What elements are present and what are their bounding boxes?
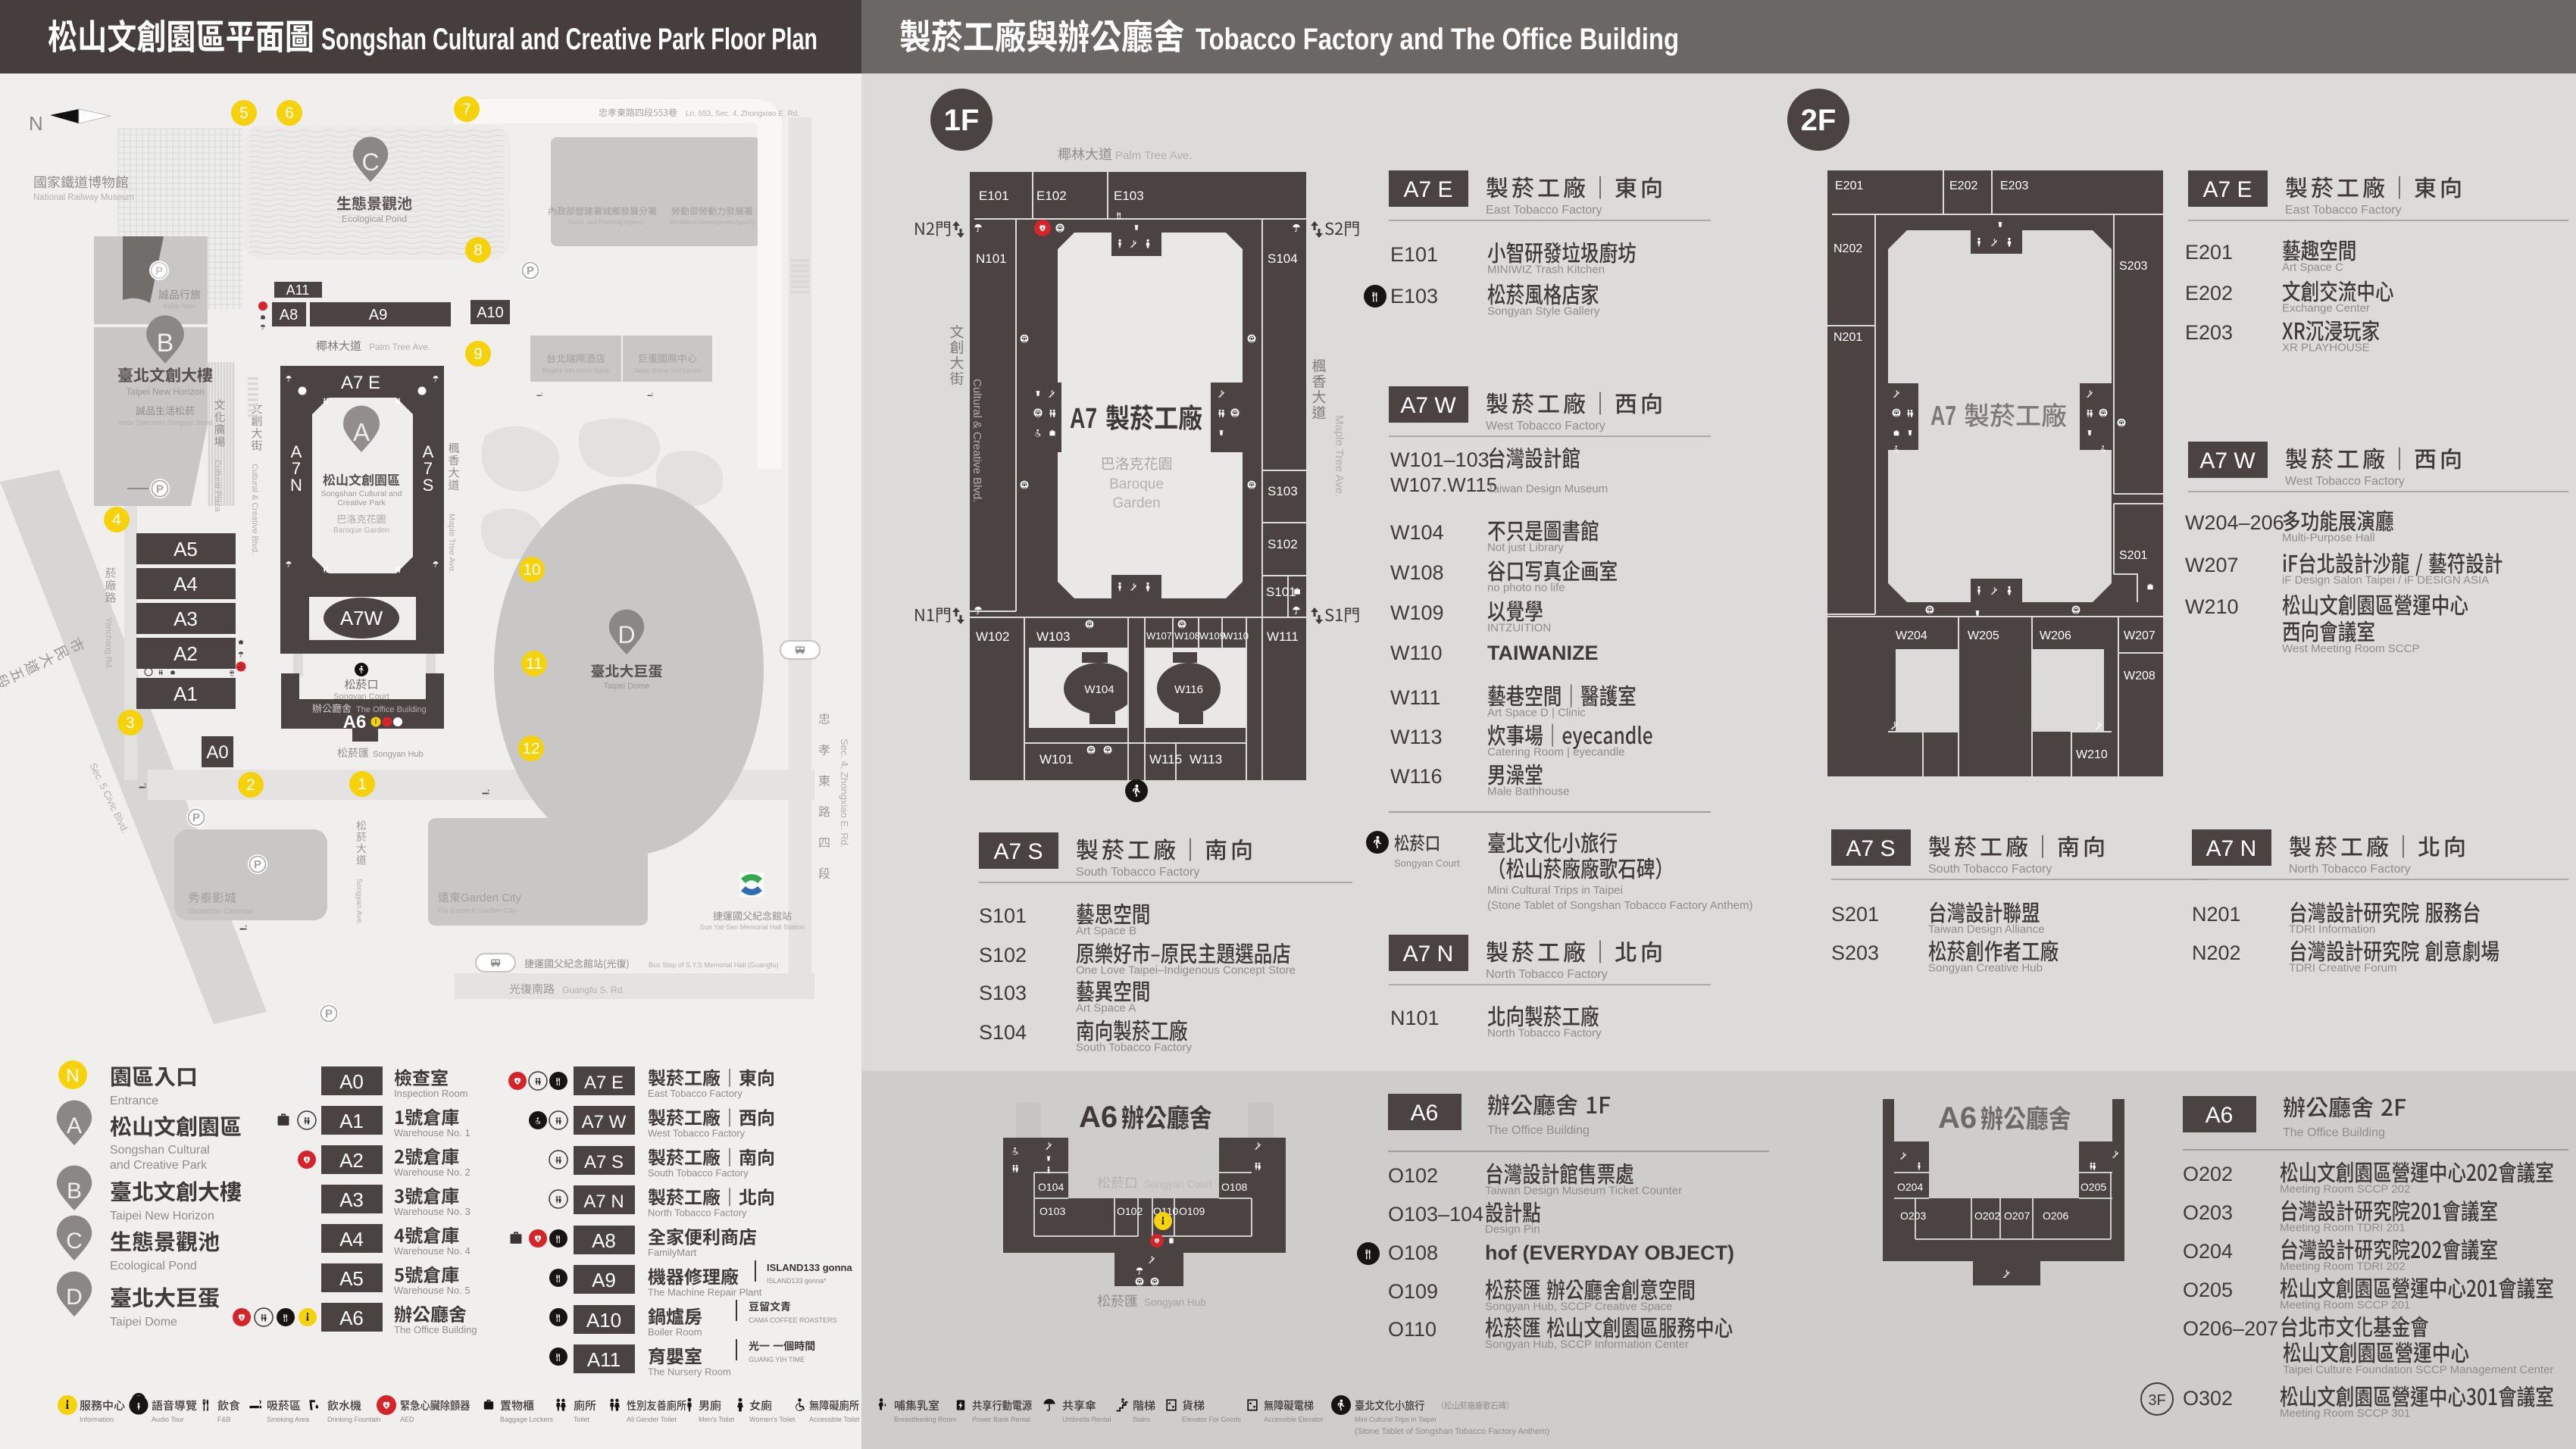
svg-text:(Stone Tablet of Songshan Toba: (Stone Tablet of Songshan Tobacco Factor… [1487,899,1753,912]
svg-text:Tobacco Factory and The Office: Tobacco Factory and The Office Building [1196,23,1679,56]
svg-text:Meeting Room SCCP 301: Meeting Room SCCP 301 [2280,1407,2410,1420]
svg-text:Taiwan Design Alliance: Taiwan Design Alliance [1928,923,2044,936]
svg-text:2: 2 [246,776,255,794]
svg-text:West Tobacco Factory: West Tobacco Factory [1486,420,1605,433]
svg-text:Meeting Room TDRI 202: Meeting Room TDRI 202 [2280,1260,2406,1273]
svg-text:E201: E201 [1835,180,1863,192]
svg-text:N: N [29,112,43,135]
svg-text:A0: A0 [206,742,228,763]
svg-text:S102: S102 [979,944,1027,967]
svg-text:A6: A6 [1079,1101,1118,1134]
svg-text:Meeting Room TDRI 201: Meeting Room TDRI 201 [2280,1222,2406,1235]
svg-text:Workforce Development Agency: Workforce Development Agency [669,219,755,226]
svg-text:Showtime Cinemas: Showtime Cinemas [188,907,253,916]
svg-text:P: P [192,811,200,824]
svg-text:Art Space C: Art Space C [2282,261,2343,274]
svg-text:North Tobacco Factory: North Tobacco Factory [648,1207,747,1219]
svg-text:Ecological Pond: Ecological Pond [342,214,407,224]
svg-text:The Office Building: The Office Building [2283,1126,2385,1139]
svg-text:N201: N201 [1834,331,1862,344]
svg-text:Guangfu S. Rd.: Guangfu S. Rd. [562,985,625,995]
svg-text:Songyan Hub: Songyan Hub [373,750,424,759]
svg-text:Taipei Culture Foundation SCCP: Taipei Culture Foundation SCCP Managemen… [2283,1363,2553,1376]
svg-text:O102: O102 [1388,1164,1438,1187]
svg-text:Taiwan Design Museum Ticket Co: Taiwan Design Museum Ticket Counter [1485,1185,1682,1198]
svg-text:FamilyMart: FamilyMart [648,1247,697,1258]
svg-text:E101: E101 [1390,243,1438,266]
svg-text:West Tobacco Factory: West Tobacco Factory [2285,475,2405,488]
svg-text:A7 N: A7 N [583,1191,624,1212]
svg-text:South Tobacco Factory: South Tobacco Factory [1076,1041,1193,1054]
svg-text:A8: A8 [280,307,298,323]
svg-text:O204: O204 [1897,1181,1923,1193]
svg-text:N202: N202 [1834,242,1862,255]
svg-text:A7W: A7W [340,607,383,629]
svg-text:Stairs: Stairs [1133,1416,1151,1423]
svg-text:A10: A10 [586,1309,621,1332]
svg-text:A6: A6 [1411,1101,1439,1126]
svg-text:O203: O203 [1900,1210,1926,1222]
svg-text:iF Design Salon Taipei / iF DE: iF Design Salon Taipei / iF DESIGN ASIA [2282,574,2489,587]
svg-text:9: 9 [474,345,483,363]
svg-text:Men's Toilet: Men's Toilet [699,1416,735,1423]
svg-text:Baroque: Baroque [1109,476,1164,492]
svg-text:North Tobacco Factory: North Tobacco Factory [1487,1027,1602,1040]
svg-text:N101: N101 [976,251,1007,266]
svg-text:Songyan Ave.: Songyan Ave. [355,879,363,926]
svg-text:The Machine Repair Plant: The Machine Repair Plant [648,1287,762,1298]
svg-text:GUANG YIH TIME: GUANG YIH TIME [749,1356,805,1363]
svg-text:6: 6 [285,105,294,122]
svg-text:Women's Toilet: Women's Toilet [749,1416,796,1423]
svg-text:Songyan Hub: Songyan Hub [1144,1297,1206,1308]
svg-text:Songyan Hub, SCCP Creative Spa: Songyan Hub, SCCP Creative Space [1485,1301,1672,1313]
svg-text:Baggage Lockers: Baggage Lockers [500,1416,554,1423]
svg-text:W206: W206 [2040,629,2071,642]
svg-text:(Stone Tablet of Songshan Toba: (Stone Tablet of Songshan Tobacco Factor… [1355,1427,1549,1436]
svg-text:Bus Stop of S.Y.S Memorial Hal: Bus Stop of S.Y.S Memorial Hall (Guangfu… [649,961,778,969]
svg-text:Taipei Dome: Taipei Dome [110,1316,177,1329]
svg-text:W115: W115 [1149,752,1182,767]
svg-text:A7 S: A7 S [584,1152,624,1173]
svg-text:P: P [155,265,163,278]
svg-text:Meeting Room SCCP 201: Meeting Room SCCP 201 [2280,1299,2410,1312]
svg-text:O103: O103 [1039,1205,1065,1217]
svg-text:A7: A7 [1930,400,1956,431]
svg-text:TAIWANIZE: TAIWANIZE [1487,642,1598,664]
svg-text:National Railway Museum: National Railway Museum [33,193,134,202]
svg-text:A: A [353,418,370,446]
svg-text:A6: A6 [2206,1103,2234,1128]
svg-text:The Office Building: The Office Building [394,1324,477,1335]
svg-text:E203: E203 [2185,321,2233,344]
svg-text:A0: A0 [339,1070,364,1093]
svg-text:West Meeting Room SCCP: West Meeting Room SCCP [2282,642,2419,655]
svg-text:W108: W108 [1174,630,1200,642]
svg-text:A: A [67,1113,82,1138]
svg-text:Accessible Toilet: Accessible Toilet [809,1416,860,1423]
svg-text:3: 3 [126,714,135,732]
svg-text:Songshan Cultural and: Songshan Cultural and [321,489,402,498]
svg-text:Toilet: Toilet [574,1416,590,1423]
svg-text:Ln. 553, Sec. 4, Zhongxiao E.: Ln. 553, Sec. 4, Zhongxiao E. Rd. [686,110,799,118]
svg-text:A1: A1 [339,1110,364,1132]
svg-text:Taiwan Design Museum: Taiwan Design Museum [1487,482,1608,495]
svg-text:E103: E103 [1390,285,1438,308]
svg-text:A1: A1 [174,682,198,705]
svg-text:W113: W113 [1190,752,1222,767]
svg-text:E103: E103 [1114,189,1144,203]
svg-text:One Love Taipei–Indigenous Con: One Love Taipei–Indigenous Concept Store [1076,964,1296,977]
svg-text:ISLAND133 gonna*: ISLAND133 gonna* [767,1277,827,1285]
svg-text:E203: E203 [2000,180,2028,192]
svg-text:TDRI Information: TDRI Information [2289,923,2375,936]
svg-text:All Gender Toilet: All Gender Toilet [627,1416,677,1423]
svg-text:Warehouse No. 5: Warehouse No. 5 [394,1285,470,1296]
svg-text:Inspection Room: Inspection Room [394,1088,468,1099]
svg-text:O108: O108 [1221,1181,1247,1193]
svg-text:A7 N: A7 N [2206,836,2257,861]
svg-text:A7 E: A7 E [1403,177,1452,202]
svg-text:Songshan Cultural and Creative: Songshan Cultural and Creative Park Floo… [321,23,818,56]
svg-text:Cultural & Creative Blvd.: Cultural & Creative Blvd. [250,464,259,554]
svg-text:A5: A5 [339,1267,364,1290]
svg-text:A6: A6 [1938,1101,1977,1135]
svg-text:C: C [66,1229,83,1254]
svg-text:S201: S201 [2119,549,2147,562]
svg-text:A7 S: A7 S [993,839,1043,864]
svg-text:A3: A3 [174,607,198,630]
svg-text:Songyan Style Gallery: Songyan Style Gallery [1487,305,1600,318]
svg-text:W116: W116 [1174,683,1203,696]
svg-text:East Tobacco Factory: East Tobacco Factory [2285,204,2402,217]
svg-text:P: P [156,483,164,496]
svg-text:Maple Tree Ave.: Maple Tree Ave. [447,514,456,573]
svg-text:B: B [157,329,174,358]
svg-text:A4: A4 [339,1228,364,1251]
svg-text:N201: N201 [2192,903,2241,926]
svg-text:P: P [254,858,261,871]
svg-text:Yanchang Rd.: Yanchang Rd. [104,617,113,670]
svg-text:W111: W111 [1267,629,1299,644]
svg-text:S201: S201 [1831,903,1879,926]
svg-text:C: C [361,148,379,176]
svg-text:W204: W204 [1896,629,1927,642]
svg-text:Const. and Planning Agency: Const. and Planning Agency [568,219,645,226]
svg-text:Audio Tour: Audio Tour [152,1416,184,1423]
svg-text:Drinking Fountain: Drinking Fountain [327,1416,381,1423]
svg-text:W101–103: W101–103 [1390,448,1490,471]
svg-text:A7 W: A7 W [1400,393,1456,418]
svg-text:A7 N: A7 N [1403,942,1454,967]
svg-text:Design Pin: Design Pin [1485,1223,1540,1236]
svg-text:W101: W101 [1039,752,1073,767]
svg-text:O204: O204 [2183,1240,2233,1263]
svg-text:W111: W111 [1390,686,1441,709]
svg-text:W205: W205 [1968,629,1999,642]
svg-text:S103: S103 [1268,484,1298,498]
svg-text:XR PLAYHOUSE: XR PLAYHOUSE [2282,342,2370,354]
svg-text:Exchange Center: Exchange Center [2282,302,2370,315]
svg-text:Sec. 4, Zhongxiao E. Rd.: Sec. 4, Zhongxiao E. Rd. [839,739,850,848]
svg-text:S102: S102 [1268,537,1298,551]
svg-text:A7 E: A7 E [2202,177,2252,202]
svg-text:O202: O202 [2183,1163,2233,1185]
svg-text:E101: E101 [979,189,1009,203]
svg-text:A7 E: A7 E [584,1073,624,1093]
svg-text:O302: O302 [2183,1387,2233,1410]
svg-text:Entrance: Entrance [110,1095,158,1107]
svg-text:B: B [67,1179,82,1204]
svg-text:W107.W115: W107.W115 [1390,473,1497,496]
svg-text:O109: O109 [1179,1205,1205,1217]
svg-text:1: 1 [358,776,367,793]
svg-text:South Tobacco Factory: South Tobacco Factory [648,1167,749,1179]
svg-text:South Tobacco Factory: South Tobacco Factory [1928,863,2052,876]
svg-text:A7 W: A7 W [582,1112,627,1132]
svg-text:Mini Cultural Trips in Taipei: Mini Cultural Trips in Taipei [1487,884,1623,897]
svg-text:Palm Tree Ave.: Palm Tree Ave. [1115,149,1192,162]
svg-text:The Nursery Room: The Nursery Room [648,1366,731,1378]
svg-text:A3: A3 [339,1188,364,1211]
svg-text:Multi-Purpose Hall: Multi-Purpose Hall [2282,532,2375,545]
svg-text:Breastfeeding Room: Breastfeeding Room [894,1416,956,1423]
svg-text:W207: W207 [2185,554,2239,576]
svg-text:W108: W108 [1390,561,1444,584]
svg-text:MINIWIZ Trash Kitchen: MINIWIZ Trash Kitchen [1487,264,1605,276]
svg-text:The Office Building: The Office Building [1487,1124,1590,1137]
svg-text:Songyan Creative Hub: Songyan Creative Hub [1928,962,2043,975]
svg-text:Accessible Elevator: Accessible Elevator [1264,1416,1324,1423]
svg-text:East Tobacco Factory: East Tobacco Factory [648,1088,742,1099]
svg-text:W104: W104 [1390,521,1444,544]
svg-text:Art Space A: Art Space A [1076,1002,1136,1015]
svg-text:Songyan Court: Songyan Court [1144,1179,1212,1190]
svg-text:E202: E202 [2185,282,2233,304]
svg-text:Art Space D | Clinic: Art Space D | Clinic [1487,707,1586,720]
svg-text:TDRI Creative Forum: TDRI Creative Forum [2289,962,2397,975]
svg-text:Warehouse No. 1: Warehouse No. 1 [394,1127,470,1138]
svg-text:ISLAND133 gonna: ISLAND133 gonna [767,1262,852,1273]
svg-text:O203: O203 [2183,1201,2233,1224]
svg-text:1F: 1F [944,104,980,137]
svg-text:Garden: Garden [1112,495,1160,511]
svg-text:Elevator For Goods: Elevator For Goods [1182,1416,1242,1423]
svg-text:A7 E: A7 E [341,373,380,393]
svg-text:W116: W116 [1390,765,1443,788]
svg-text:4: 4 [112,511,121,529]
svg-text:A11: A11 [587,1348,621,1371]
svg-text:W210: W210 [2185,595,2239,618]
svg-text:12: 12 [522,740,539,757]
svg-text:W107: W107 [1146,630,1172,642]
svg-text:Meeting Room SCCP 202: Meeting Room SCCP 202 [2280,1183,2410,1196]
svg-text:W110: W110 [1390,642,1443,664]
svg-text:Art Space B: Art Space B [1076,925,1136,938]
svg-text:Songyan Hub, SCCP Information: Songyan Hub, SCCP Information Center [1485,1338,1689,1351]
svg-text:Regent Int'l Hotel Taipei: Regent Int'l Hotel Taipei [542,367,609,374]
svg-text:North Tobacco Factory: North Tobacco Factory [2289,863,2411,876]
svg-text:A9: A9 [369,307,387,323]
svg-text:Male Bathhouse: Male Bathhouse [1487,785,1569,798]
svg-text:eslite Spectrum Songyan Store: eslite Spectrum Songyan Store [118,419,212,426]
svg-text:O102: O102 [1117,1205,1143,1217]
svg-text:A6: A6 [339,1307,364,1329]
svg-text:A6: A6 [343,712,367,732]
svg-text:and Creative Park: and Creative Park [110,1159,208,1172]
svg-text:W103: W103 [1036,629,1070,644]
svg-text:8: 8 [474,242,483,259]
svg-text:O207: O207 [2004,1210,2030,1222]
svg-text:Songyan Court: Songyan Court [1394,857,1460,869]
svg-text:Taipei Dome: Taipei Dome [603,682,649,691]
svg-text:W208: W208 [2124,670,2156,682]
svg-text:S203: S203 [1831,942,1879,964]
svg-text:S104: S104 [1268,251,1298,266]
svg-text:Warehouse No. 4: Warehouse No. 4 [394,1245,470,1257]
svg-text:A7 S: A7 S [1846,836,1895,861]
svg-text:Creative Park: Creative Park [337,498,386,507]
svg-text:P: P [527,264,534,277]
svg-text:Far Eastern Garden City: Far Eastern Garden City [438,907,516,915]
svg-text:S: S [423,476,434,495]
svg-text:A11: A11 [286,283,310,298]
svg-text:S103: S103 [979,982,1027,1004]
svg-text:A9: A9 [592,1269,616,1291]
svg-text:Baroque Garden: Baroque Garden [333,526,389,535]
svg-text:5: 5 [239,105,249,122]
svg-text:A8: A8 [592,1229,616,1252]
svg-text:Garden City: Garden City [461,892,522,904]
svg-text:O103–104: O103–104 [1388,1203,1483,1226]
svg-text:hof (EVERYDAY OBJECT): hof (EVERYDAY OBJECT) [1485,1241,1734,1264]
svg-text:A7: A7 [1070,403,1097,435]
svg-text:no photo no life: no photo no life [1487,582,1565,595]
svg-text:O205: O205 [2183,1279,2233,1301]
svg-text:P: P [325,1007,333,1020]
svg-text:W204–206: W204–206 [2185,511,2284,534]
svg-text:Ecological Pond: Ecological Pond [110,1260,197,1273]
svg-text:A4: A4 [174,573,198,595]
svg-text:West Tobacco Factory: West Tobacco Factory [648,1128,746,1139]
svg-text:S101: S101 [1266,585,1296,599]
svg-text:F&B: F&B [217,1416,231,1423]
svg-text:South Tobacco Factory: South Tobacco Factory [1076,866,1199,879]
svg-text:O110: O110 [1388,1318,1436,1341]
svg-text:A10: A10 [477,304,504,321]
svg-text:3F: 3F [2148,1392,2165,1409]
svg-text:The Office Building: The Office Building [356,705,427,714]
svg-text:S101: S101 [979,904,1027,927]
svg-text:E102: E102 [1036,189,1067,203]
svg-text:North Tobacco Factory: North Tobacco Factory [1486,968,1608,981]
svg-text:INTZUITION: INTZUITION [1487,622,1551,635]
svg-text:O108: O108 [1388,1241,1438,1264]
svg-text:N: N [66,1066,79,1086]
svg-text:O206: O206 [2043,1210,2068,1222]
svg-text:Warehouse No. 3: Warehouse No. 3 [394,1206,470,1217]
svg-text:E201: E201 [2185,241,2233,264]
svg-text:AED: AED [400,1416,414,1423]
svg-text:Taipei New Horizon: Taipei New Horizon [110,1210,214,1223]
svg-text:CAMA COFFEE ROASTERS: CAMA COFFEE ROASTERS [749,1316,837,1324]
svg-text:10: 10 [523,561,540,579]
svg-text:D: D [617,621,635,648]
svg-text:O109: O109 [1388,1280,1438,1303]
svg-text:N202: N202 [2192,942,2241,964]
svg-text:W102: W102 [976,629,1009,644]
svg-text:Power Bank Rental: Power Bank Rental [972,1416,1030,1423]
svg-text:W113: W113 [1390,726,1443,748]
svg-text:O202: O202 [1974,1210,2000,1222]
svg-text:Cultural & Creative Blvd.: Cultural & Creative Blvd. [971,379,983,502]
svg-text:Umbrella Rental: Umbrella Rental [1062,1416,1111,1423]
svg-text:D: D [66,1285,83,1310]
svg-text:Warehouse No. 2: Warehouse No. 2 [394,1166,470,1178]
svg-text:Boiler Room: Boiler Room [648,1326,702,1338]
svg-text:East Tobacco Factory: East Tobacco Factory [1486,204,1602,217]
svg-text:Taipei Dome Int'l Center: Taipei Dome Int'l Center [633,367,702,374]
svg-text:W104: W104 [1084,683,1114,696]
svg-text:W109: W109 [1199,630,1225,642]
svg-text:N101: N101 [1390,1007,1440,1029]
svg-text:2F: 2F [1801,104,1837,137]
svg-text:E202: E202 [1949,180,1977,192]
svg-text:Songshan Cultural: Songshan Cultural [110,1144,210,1157]
svg-text:W110: W110 [1224,630,1249,642]
svg-text:Sun Yat-Sen Memorial Hall Stat: Sun Yat-Sen Memorial Hall Station [700,923,805,931]
svg-text:Maple Tree Ave.: Maple Tree Ave. [1333,415,1346,497]
svg-text:W210: W210 [2076,748,2108,761]
svg-text:W207: W207 [2124,629,2156,642]
svg-text:O104: O104 [1038,1181,1064,1193]
svg-text:A2: A2 [174,642,198,665]
svg-text:Smoking Area: Smoking Area [267,1416,309,1423]
svg-text:A7 W: A7 W [2199,448,2256,473]
svg-text:A5: A5 [174,538,198,561]
svg-text:Taipei New Horizon: Taipei New Horizon [126,386,204,397]
svg-text:Catering Room | eyecandle: Catering Room | eyecandle [1487,746,1625,759]
svg-text:eslite hotel: eslite hotel [163,302,195,310]
svg-text:N: N [290,476,302,495]
svg-text:Cultural Plaza: Cultural Plaza [213,460,222,512]
svg-text:S104: S104 [979,1021,1027,1044]
svg-text:Mini Cultural Trips in Taipei: Mini Cultural Trips in Taipei [1355,1416,1436,1423]
svg-text:Not just Library: Not just Library [1487,542,1564,554]
svg-text:11: 11 [526,655,542,673]
svg-text:S203: S203 [2119,260,2147,273]
svg-text:A2: A2 [339,1149,364,1172]
svg-text:Palm Tree Ave.: Palm Tree Ave. [369,342,430,352]
svg-text:Information: Information [80,1416,114,1423]
svg-text:O205: O205 [2080,1181,2106,1193]
svg-text:7: 7 [462,101,471,118]
svg-text:W109: W109 [1390,601,1444,624]
svg-text:O206–207: O206–207 [2183,1317,2278,1340]
